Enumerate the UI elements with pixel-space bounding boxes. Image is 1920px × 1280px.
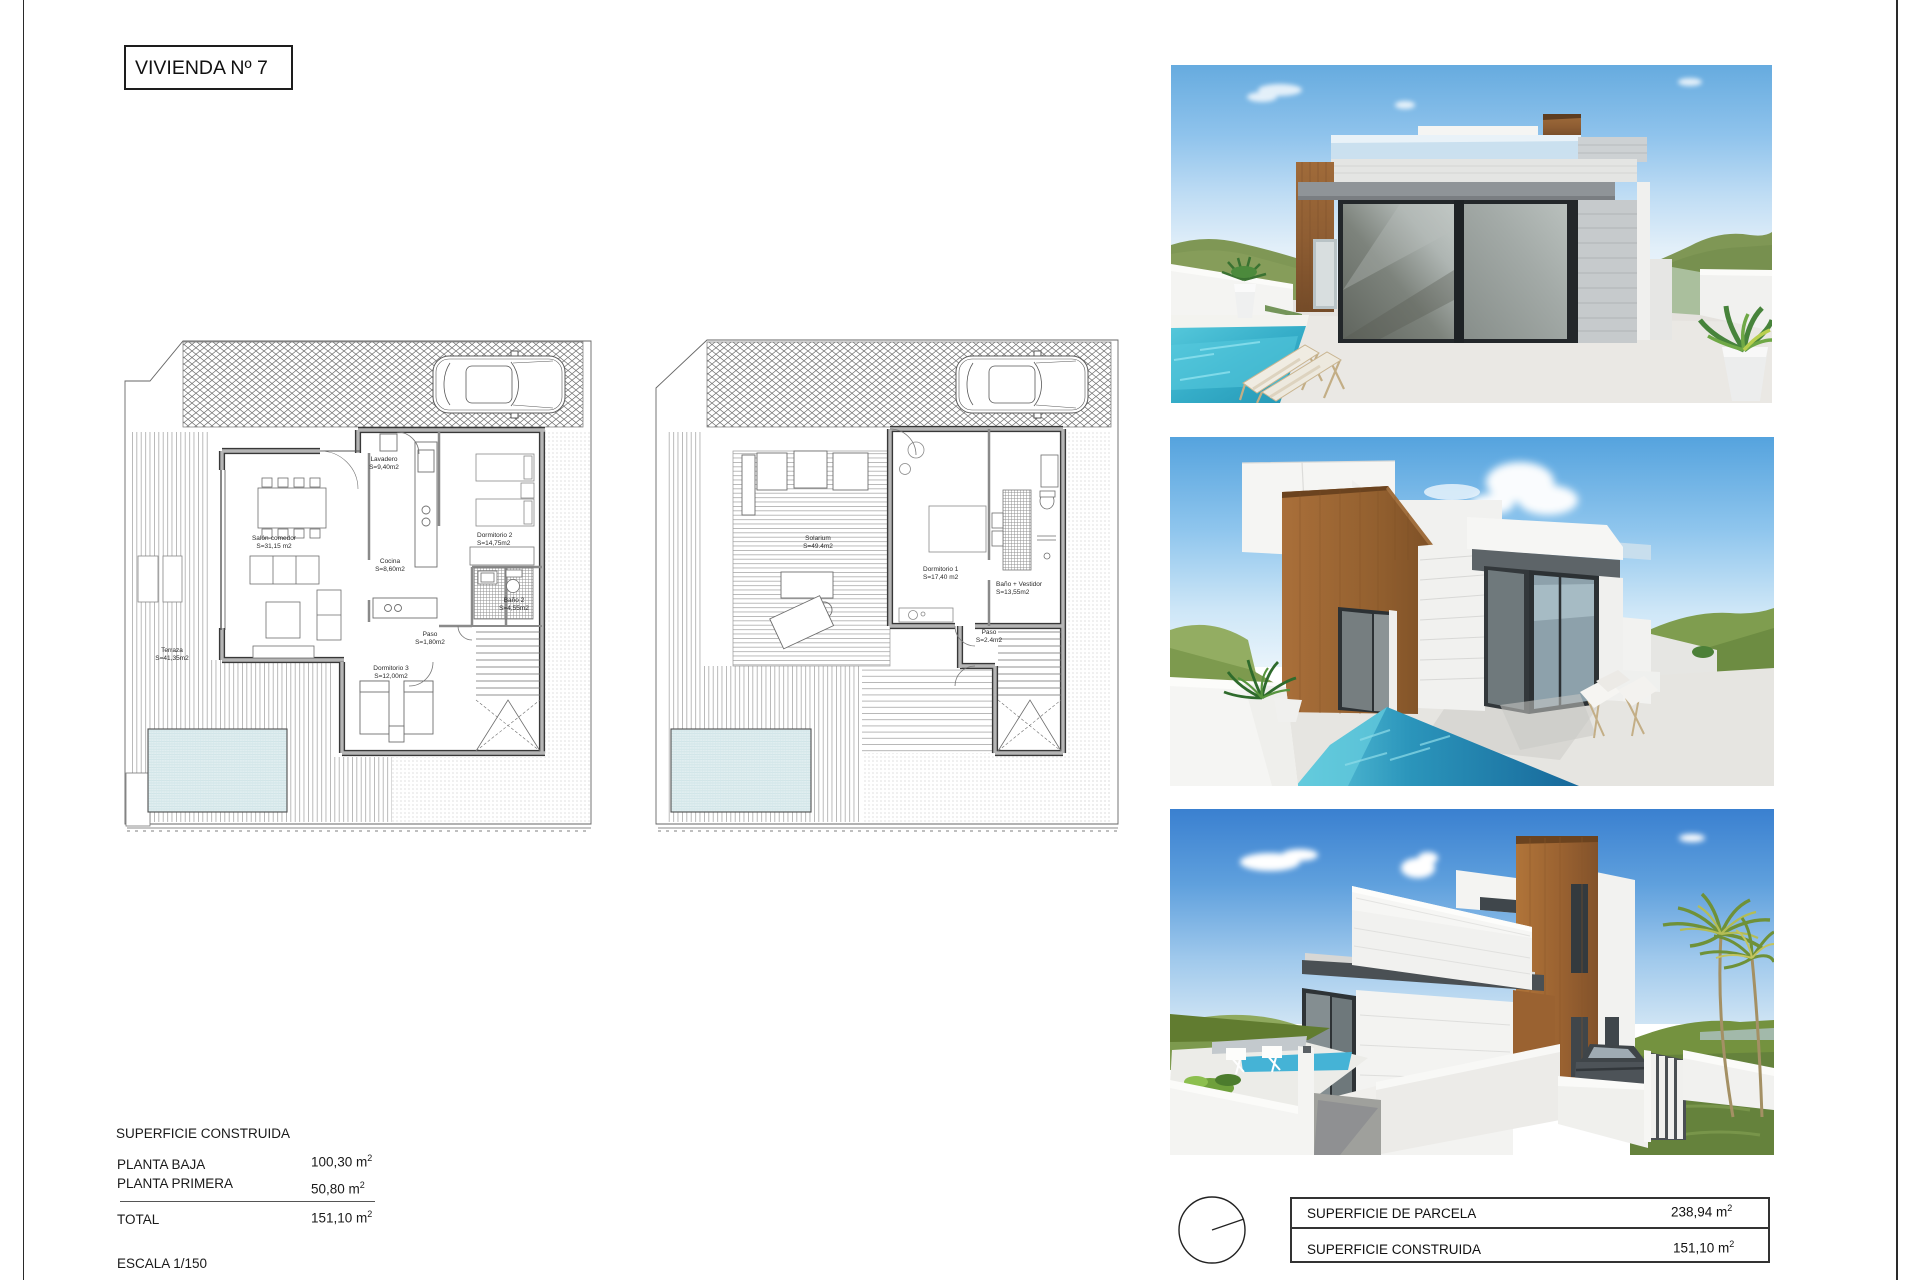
svg-text:Paso: Paso — [423, 631, 438, 638]
svg-text:Cocina: Cocina — [380, 558, 401, 565]
svg-text:Baño + Vestidor: Baño + Vestidor — [996, 581, 1043, 588]
svg-text:Baño 2: Baño 2 — [504, 597, 525, 604]
svg-text:S=13,55m2: S=13,55m2 — [996, 589, 1030, 596]
svg-text:Lavadero: Lavadero — [370, 456, 397, 463]
svg-text:S=1,80m2: S=1,80m2 — [415, 639, 445, 646]
svg-text:S=14,75m2: S=14,75m2 — [477, 540, 511, 547]
svg-text:S=31,15 m2: S=31,15 m2 — [256, 543, 292, 550]
svg-text:Terraza: Terraza — [161, 647, 183, 654]
svg-text:S=12,00m2: S=12,00m2 — [374, 673, 408, 680]
svg-text:Dormitorio 1: Dormitorio 1 — [923, 566, 959, 573]
svg-text:Dormitorio 3: Dormitorio 3 — [373, 665, 409, 672]
svg-text:S=8,60m2: S=8,60m2 — [375, 566, 405, 573]
svg-text:Paso: Paso — [982, 629, 997, 636]
svg-text:S=2.4m2: S=2.4m2 — [976, 637, 1003, 644]
svg-text:Solarium: Solarium — [805, 535, 831, 542]
svg-text:S=17,40 m2: S=17,40 m2 — [923, 574, 959, 581]
svg-text:S=9,40m2: S=9,40m2 — [369, 464, 399, 471]
svg-text:Dormitorio 2: Dormitorio 2 — [477, 532, 513, 539]
svg-text:S=41,35m2: S=41,35m2 — [155, 655, 189, 662]
svg-text:S=4,55m2: S=4,55m2 — [499, 605, 529, 612]
svg-text:S=49.4m2: S=49.4m2 — [803, 543, 833, 550]
svg-text:Salón-comedor: Salón-comedor — [252, 535, 297, 542]
